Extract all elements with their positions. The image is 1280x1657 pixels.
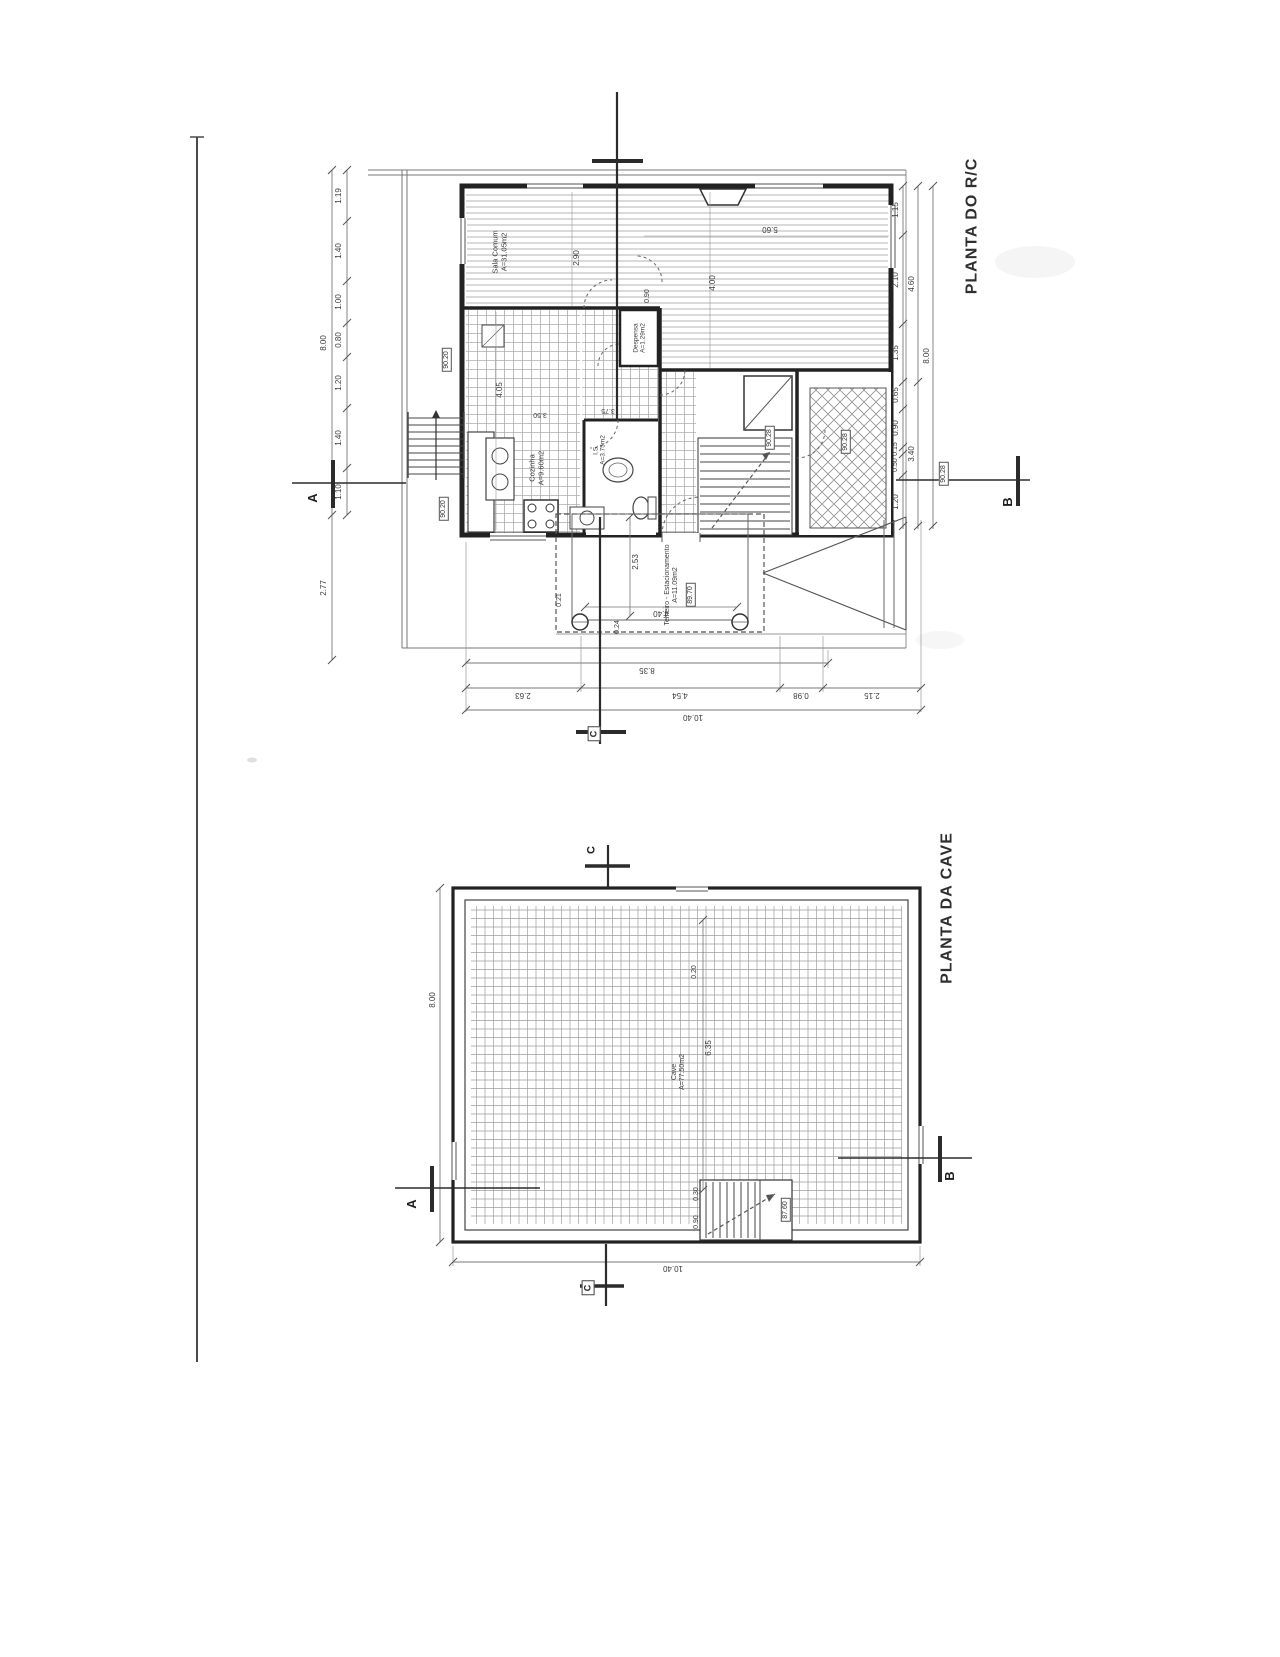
- room-area: A=77.50m2: [679, 1054, 687, 1090]
- room-name: Telheiro - Estacionamento: [664, 545, 672, 626]
- rc-dim-bottom-total: 10.40: [683, 712, 703, 722]
- rc-dim-left-total: 8.00: [319, 335, 329, 351]
- room-area: A=1.29m2: [640, 323, 647, 353]
- room-label-telheiro: Telheiro - Estacionamento A=11.09m2: [664, 545, 680, 626]
- rc-dim-right-1: 2.10: [891, 272, 901, 288]
- rc-dim-kitchen-depth: 4.05: [495, 382, 505, 398]
- rc-dim-left-below: 2.77: [319, 580, 329, 596]
- rc-exterior-stairs: [408, 410, 464, 480]
- rc-dim-right-total: 8.00: [922, 348, 932, 364]
- room-label-cave: Cave A=77.50m2: [671, 1054, 687, 1090]
- rc-building: [458, 181, 897, 542]
- level-marker-walk-b: 90.20: [439, 497, 449, 521]
- level-marker-walk-a: 90.20: [442, 348, 452, 372]
- rc-dim-right-4: 0.90: [891, 420, 901, 436]
- cave-dim-wall: 0.20: [691, 965, 699, 979]
- cave-plan-title: PLANTA DA CAVE: [937, 832, 956, 984]
- rc-dim-left-4: 1.20: [334, 375, 344, 391]
- level-marker-carport: 89.70: [686, 583, 696, 607]
- room-area: A=11.09m2: [672, 545, 680, 626]
- rc-dim-sala-depth: 2.90: [572, 250, 582, 266]
- cave-section-letter-a: A: [404, 1199, 420, 1208]
- rc-dim-left-0: 1.19: [334, 188, 344, 204]
- cave-dim-inner: 6.35: [704, 1040, 714, 1056]
- rc-dim-car-off-b: 0.24: [614, 620, 622, 634]
- rc-dim-right-6: 0.50: [892, 458, 900, 472]
- rc-dim-right-subtotal-1: 3.40: [907, 446, 917, 462]
- section-letter-a: A: [305, 493, 321, 502]
- rc-plan-title: PLANTA DO R/C: [962, 158, 981, 295]
- level-marker-entry: 90.28: [939, 462, 949, 486]
- cave-section-letter-c-top: C: [585, 846, 598, 854]
- room-area: A=3.75m2: [600, 435, 607, 465]
- rc-dim-car-depth: 2.53: [631, 554, 641, 570]
- drawing-sheet: PLANTA DO R/C PLANTA DA CAVE 1.19 1.40 1…: [0, 0, 1280, 1657]
- room-name: I.S.: [593, 435, 600, 465]
- room-area: A=9.60m2: [537, 451, 546, 485]
- rc-dim-right-2: 1.35: [891, 345, 901, 361]
- rc-dim-bottom-0: 2.63: [515, 690, 531, 700]
- rc-dim-door: 0.90: [644, 289, 652, 303]
- rc-dim-bottom-2: 0.98: [793, 690, 809, 700]
- rc-dim-right-0: 1.15: [891, 202, 901, 218]
- rc-dim-right-subtotal-0: 4.60: [907, 276, 917, 292]
- cave-section-letter-b: B: [942, 1171, 958, 1180]
- rc-dim-left-6: 1.10: [334, 484, 344, 500]
- room-label-sala: Sala Comum A=31.05m2: [491, 230, 508, 273]
- section-letter-c-boxed: C: [588, 727, 601, 742]
- room-name: Despensa: [633, 323, 640, 353]
- rc-dim-left-2: 1.00: [334, 294, 344, 310]
- rc-dim-sala-width: 5.60: [762, 224, 778, 234]
- cave-dim-left-total: 8.00: [428, 992, 438, 1008]
- rc-dim-bottom-3: 2.15: [864, 690, 880, 700]
- level-marker-patio: 90.28: [841, 430, 851, 454]
- room-label-is: I.S. A=3.75m2: [593, 435, 608, 465]
- level-marker-hall: 90.28: [765, 426, 775, 450]
- level-marker-cave: 87.60: [781, 1198, 791, 1222]
- rc-dim-hall-a: 3.50: [533, 410, 547, 418]
- room-label-despensa: Despensa A=1.29m2: [633, 323, 648, 353]
- rc-dim-bottom-1: 4.54: [672, 690, 688, 700]
- rc-dim-sala-height: 4.00: [708, 275, 718, 291]
- rc-dim-right-7: 1.20: [891, 494, 901, 510]
- rc-dim-hall-b: 3.75: [601, 406, 615, 414]
- cave-section-letter-c-boxed: C: [582, 1281, 595, 1296]
- rc-dim-left-3: 0.80: [334, 332, 344, 348]
- room-name: Cave: [671, 1054, 679, 1090]
- rc-dim-left-5: 1.40: [334, 430, 344, 446]
- rc-dim-right-5: 0.15: [892, 442, 900, 456]
- room-area: A=31.05m2: [500, 230, 509, 273]
- rc-dim-bottom-upper: 8.35: [639, 665, 655, 675]
- rc-dim-left-1: 1.40: [334, 243, 344, 259]
- rc-dim-right-3: 0.65: [891, 387, 901, 403]
- section-letter-b: B: [1000, 497, 1016, 506]
- cave-dim-stair-b: 0.90: [693, 1215, 701, 1229]
- rc-dim-car-off-a: 0.21: [556, 593, 564, 607]
- room-label-cozinha: Cozinha A=9.60m2: [528, 451, 545, 485]
- floorplan-linework: [0, 0, 1280, 1657]
- cave-dim-bottom-total: 10.40: [663, 1263, 683, 1273]
- cave-dim-stair-a: 0.30: [693, 1187, 701, 1201]
